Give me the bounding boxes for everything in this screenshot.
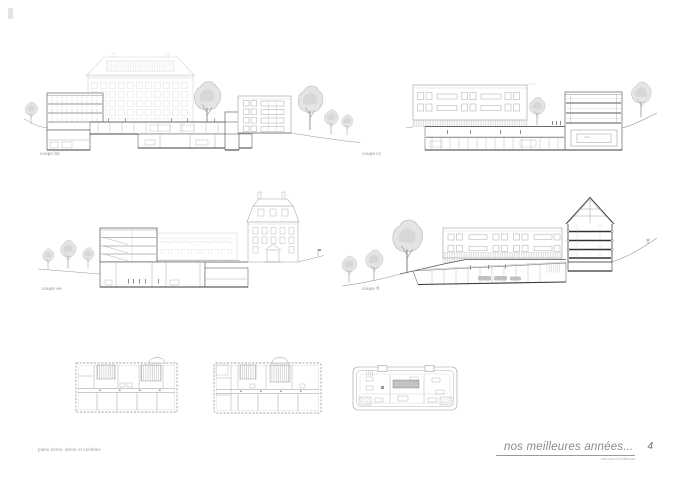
drawing-sheet: coupe bb coupe cc coupe ee coupe ff plan… [0,0,675,477]
drawing-plan-1 [76,358,177,413]
label-coupe-cc: coupe cc [362,151,381,156]
drawing-plan-2 [214,358,321,414]
plans-caption: plans 2ème, 3ème et combles [38,447,101,452]
label-coupe-bb: coupe bb [40,151,60,156]
drawing-coupe-ee [38,192,324,287]
drawing-coupe-bb [24,53,360,150]
drawing-coupe-cc [406,82,657,150]
drawing-plan-3 [353,366,457,411]
title-block: nos meilleures années... concours d'arch… [496,441,653,466]
drawings-canvas [0,0,675,477]
label-coupe-ee: coupe ee [42,286,62,291]
drawing-coupe-ff [342,198,657,287]
project-subtitle: concours d'architecture [601,457,636,461]
project-title: nos meilleures années... [496,441,635,456]
sheet-number: 4 [647,441,653,452]
label-coupe-ff: coupe ff [362,286,379,291]
